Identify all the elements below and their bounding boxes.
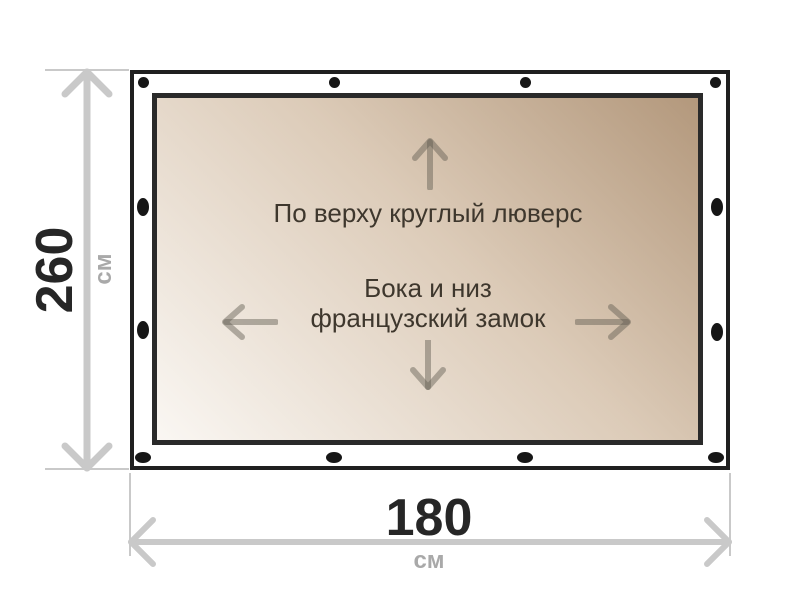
grommet-top-2 [329, 77, 340, 88]
grommet-bottom-1 [135, 452, 151, 463]
grommet-left-2 [137, 321, 149, 339]
height-unit: см [91, 239, 117, 299]
grommet-left-1 [137, 198, 149, 216]
grommet-top-3 [520, 77, 531, 88]
grommet-bottom-3 [517, 452, 533, 463]
arrow-up-icon [412, 136, 448, 190]
grommet-top-1 [138, 77, 149, 88]
grommet-top-4 [710, 77, 721, 88]
sides-bottom-label: Бока и низ французский замок [155, 273, 701, 333]
width-value: 180 [329, 488, 529, 548]
grommet-right-2 [711, 323, 723, 341]
arrow-down-icon [410, 340, 446, 392]
width-unit: см [329, 547, 529, 575]
grommet-bottom-4 [708, 452, 724, 463]
height-value: 260 [27, 190, 83, 350]
grommet-right-1 [711, 198, 723, 216]
sides-bottom-label-line2: французский замок [155, 303, 701, 333]
dimension-diagram: По верху круглый люверс Бока и низ франц… [0, 0, 800, 600]
grommet-bottom-2 [326, 452, 342, 463]
top-edge-label: По верху круглый люверс [155, 198, 701, 228]
sides-bottom-label-line1: Бока и низ [155, 273, 701, 303]
